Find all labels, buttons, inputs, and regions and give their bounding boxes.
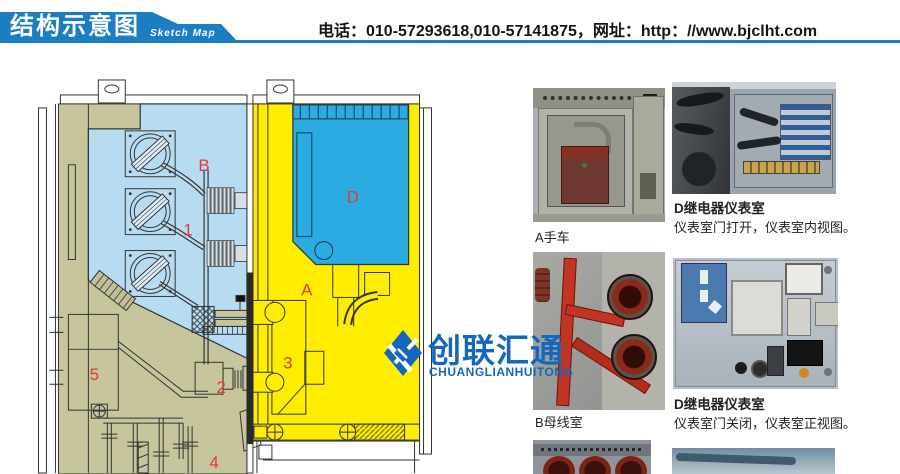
relay-module	[787, 298, 811, 336]
caption-photo-d-closed: 仪表室门关闭，仪表室正视图。	[674, 413, 856, 432]
cabinet-top-lugs	[60, 80, 419, 104]
caption-photo-d-open-title: D继电器仪表室	[674, 197, 765, 217]
photo-a-handcart	[533, 88, 665, 222]
cabinet-base	[253, 424, 420, 473]
panel-handle	[676, 453, 796, 465]
panel-meter	[785, 263, 823, 295]
cable-terminal	[579, 456, 611, 474]
label-3: 3	[283, 353, 292, 372]
recorder-meter	[731, 280, 783, 336]
indicator-lamp	[799, 368, 809, 378]
cable-terminal	[543, 456, 575, 474]
terminal-blocks	[780, 104, 831, 159]
cabinet-sill	[533, 214, 665, 222]
spout-insulator	[611, 334, 657, 380]
photo-d-relay-open	[672, 82, 836, 194]
label-2: 2	[216, 378, 225, 397]
photo-cable-room-partial	[533, 440, 651, 474]
label-D: D	[347, 188, 359, 207]
relay-panel	[734, 94, 833, 188]
catalog-page: 结构示意图 Sketch Map 电话：010-57293618,010-571…	[0, 0, 900, 474]
label-4: 4	[209, 453, 218, 472]
switchgear-structure-diagram: B 1 D A 3 5 2 4	[35, 75, 435, 474]
push-button	[735, 362, 747, 374]
page-subtitle: Sketch Map	[150, 28, 216, 39]
company-name-en: CHUANGLIANHUITONG	[429, 365, 573, 379]
cable-coil	[682, 152, 716, 186]
cable-terminal	[615, 456, 647, 474]
label-1: 1	[183, 221, 192, 240]
caption-photo-d-open: 仪表室门打开，仪表室内视图。	[674, 217, 856, 236]
mimic-diagram-label	[681, 263, 727, 323]
title-banner: 结构示意图 Sketch Map	[0, 12, 242, 43]
partition-wall-lower	[247, 273, 253, 445]
wiring-harness	[737, 136, 782, 150]
caption-photo-a: A手车	[535, 227, 570, 246]
open-door	[633, 96, 664, 216]
indicator-knobs	[543, 96, 639, 100]
insulator-stub	[535, 268, 550, 302]
wiring-harness	[739, 107, 780, 127]
side-panel	[38, 108, 46, 473]
photo-d-relay-closed	[673, 258, 838, 389]
indicator-dot	[582, 163, 587, 168]
page-title: 结构示意图	[10, 14, 140, 40]
contact-info: 电话：010-57293618,010-57141875，网址：http：//w…	[318, 17, 817, 41]
spout-insulator	[607, 274, 653, 320]
label-B: B	[198, 156, 209, 175]
small-relay	[815, 302, 838, 326]
label-5: 5	[90, 365, 99, 384]
right-side-wall	[420, 108, 432, 454]
door-screw	[824, 266, 832, 274]
relay-room-d-region	[293, 105, 409, 265]
photo-panel-partial	[672, 448, 835, 474]
label-A: A	[301, 280, 313, 299]
bolt-row	[541, 448, 641, 451]
door-window	[640, 173, 656, 199]
caption-photo-b: B母线室	[535, 412, 583, 431]
breaker-truck	[561, 146, 609, 204]
terminal-strip	[743, 161, 821, 174]
caption-photo-d-closed-title: D继电器仪表室	[674, 393, 765, 413]
display-window	[787, 340, 823, 366]
cabinet-frame	[538, 108, 633, 216]
company-logo-icon	[383, 329, 423, 377]
control-key	[767, 346, 784, 376]
door-screw	[824, 368, 832, 376]
watermark-logo: 创联汇通 CHUANGLIANHUITONG	[383, 322, 583, 394]
breaker-compartment	[547, 115, 625, 207]
